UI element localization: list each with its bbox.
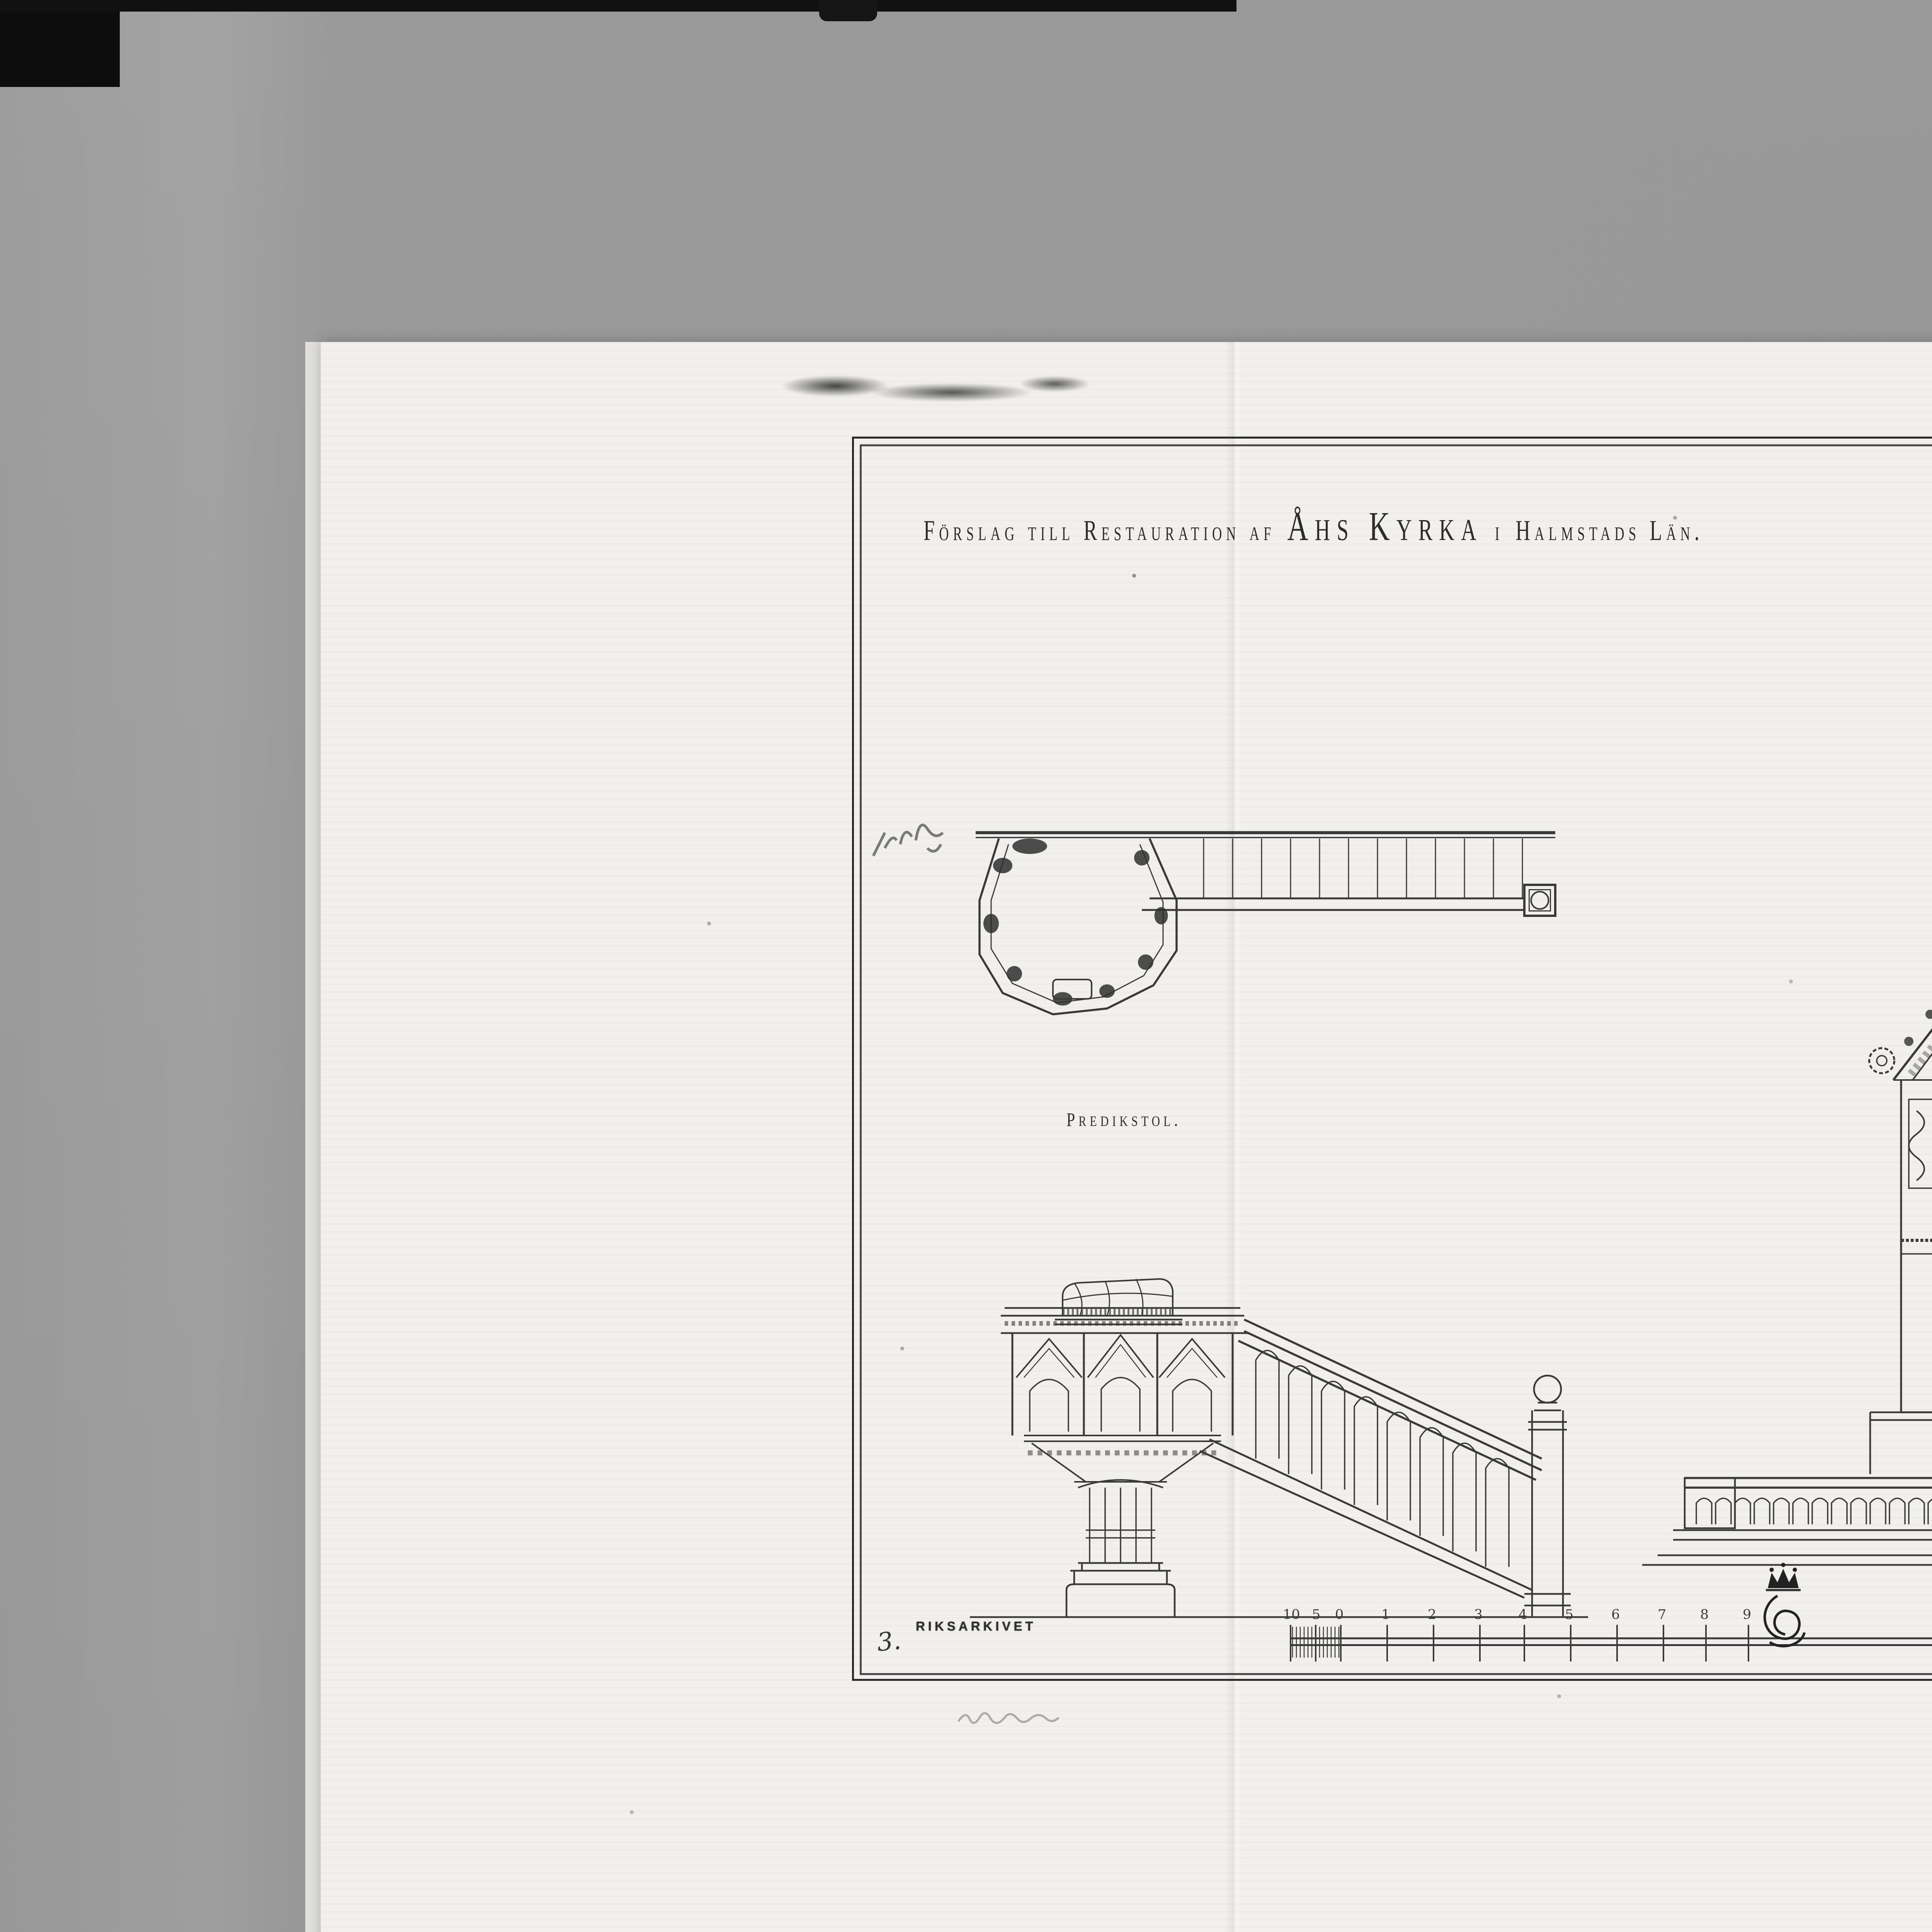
scale-number: 10 — [1283, 1607, 1300, 1622]
title-region: Halmstads Län. — [1515, 518, 1704, 548]
sheet-left-edge — [305, 342, 321, 1932]
scale-number: 1 — [1381, 1607, 1390, 1622]
scale-bar: 10 5 0 1 2 3 4 5 6 7 8 9 20 Fot. — [1275, 1561, 1932, 1669]
film-top-edge — [0, 0, 1236, 12]
scale-number: 4 — [1519, 1607, 1527, 1622]
plan-ornament-marks — [983, 838, 1168, 1006]
faint-pencil-note — [954, 1702, 1063, 1733]
title-conjunction: i — [1495, 518, 1504, 548]
microfilm-scan: Förslag till Restauration af Åhs Kyrka i… — [0, 0, 1932, 1932]
film-corner-mark — [0, 0, 120, 87]
film-top-notch — [819, 0, 877, 21]
drawing-title: Förslag till Restauration af Åhs Kyrka i… — [923, 504, 1704, 554]
scale-number: 5 — [1565, 1607, 1573, 1622]
pulpit-plan-drawing — [976, 827, 1555, 1020]
pencil-scribble — [869, 810, 958, 864]
scale-number: 8 — [1700, 1607, 1709, 1622]
sheet-number: 3. — [876, 1628, 903, 1659]
scale-number: 2 — [1428, 1607, 1436, 1622]
drawing-sheet: Förslag till Restauration af Åhs Kyrka i… — [321, 342, 1932, 1932]
gable-crockets — [1904, 901, 1932, 1046]
altar-elevation-drawing — [1642, 844, 1932, 1569]
scale-number: 0 — [1335, 1607, 1344, 1622]
scale-number: 6 — [1611, 1607, 1620, 1622]
scan-stage: Förslag till Restauration af Åhs Kyrka i… — [0, 0, 1932, 1932]
label-pulpit: Predikstol. — [1066, 1109, 1181, 1131]
scale-number: 3 — [1474, 1607, 1483, 1622]
riksarkivet-stamp: RIKSARKIVET — [916, 1621, 1036, 1634]
ink-smudge — [769, 369, 1101, 412]
scale-numbers: 10 5 0 1 2 3 4 5 6 7 8 9 — [1283, 1607, 1751, 1622]
title-church-name: Åhs Kyrka — [1287, 507, 1483, 551]
altar-balustrade-path — [1696, 1498, 1932, 1525]
title-prefix: Förslag till Restauration af — [923, 518, 1275, 548]
royal-cipher-monogram — [1765, 1563, 1804, 1646]
pulpit-elevation-drawing — [966, 1188, 1594, 1623]
scale-number: 9 — [1743, 1607, 1751, 1622]
dust-specks — [321, 342, 325, 346]
scale-number: 7 — [1658, 1607, 1666, 1622]
scale-number: 5 — [1312, 1607, 1320, 1622]
